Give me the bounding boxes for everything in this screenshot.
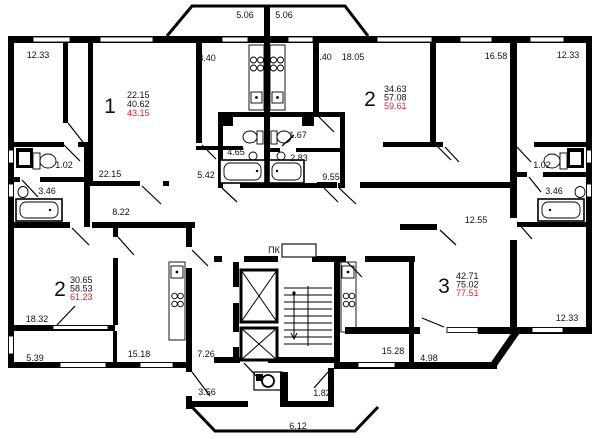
label-balcony-tr: 5.06 (275, 10, 293, 20)
label-balcony-539: 5.39 (26, 353, 44, 363)
label-room-tl: 12.33 (27, 50, 50, 60)
label-room-tr: 12.33 (557, 50, 580, 60)
floor-plan: 5.06 5.06 12.33 8.40 8.40 18.05 16.58 12… (0, 0, 600, 438)
label-wc-167: 1.67 (289, 130, 307, 140)
label-corr-542: 5.42 (197, 170, 215, 180)
apartment-1-total-with-balcony: 43.15 (127, 108, 150, 118)
label-hall-822: 8.22 (112, 207, 130, 217)
label-vest-182: 1.82 (313, 388, 331, 398)
label-bath-465: 4.65 (227, 147, 245, 157)
label-bath-left: 3.46 (38, 186, 56, 196)
label-vest-356: 3.56 (198, 387, 216, 397)
apartment-3-stamp: 3 42.71 75.02 77.51 (438, 271, 478, 298)
apartment-2-bottom-total-with-balcony: 61.23 (70, 292, 93, 302)
label-room-1658: 16.58 (485, 51, 508, 61)
label-kitchen-apt1: 8.40 (198, 53, 216, 63)
label-kitchen-apt2: 8.40 (314, 52, 332, 62)
apartment-2-top-stamp: 2 34.63 57.08 59.61 (364, 84, 406, 111)
label-porch-612: 6.12 (289, 421, 307, 431)
entrance-porch-outline (192, 407, 378, 431)
label-kitchen-1528: 15.28 (382, 346, 405, 356)
staircase (284, 286, 332, 346)
elevator-shafts (241, 270, 277, 360)
label-room-1805: 18.05 (342, 52, 365, 62)
apartment-2-top-number: 2 (364, 88, 376, 111)
label-bath-right: 3.46 (545, 186, 563, 196)
label-wc-right: 1.02 (533, 160, 551, 170)
apartment-2-top-total-with-balcony: 59.61 (384, 101, 407, 111)
label-balcony-498: 4.98 (420, 353, 438, 363)
walls (8, 6, 592, 409)
label-corr-1255: 12.55 (465, 215, 488, 225)
apartment-1-number: 1 (104, 95, 116, 118)
apartment-3-total-with-balcony: 77.51 (456, 288, 479, 298)
garbage-chute (254, 372, 282, 390)
apartment-1-stamp: 1 22.15 40.62 43.15 (104, 90, 149, 118)
label-corr-726: 7.26 (197, 349, 215, 359)
label-room-2215: 22.15 (99, 169, 122, 179)
label-room-1832: 18.32 (26, 314, 49, 324)
label-wc-left: 1.02 (55, 160, 73, 170)
label-balcony-tl: 5.06 (236, 10, 254, 20)
fire-cabinet (282, 244, 316, 257)
apartment-2-bottom-stamp: 2 30.65 58.53 61.23 (54, 275, 92, 302)
label-bath-283: 2.83 (290, 153, 308, 163)
label-corr-955: 9.55 (322, 172, 340, 182)
label-fire-cabinet: ПК (268, 245, 280, 255)
apartment-2-bottom-number: 2 (54, 278, 66, 301)
label-room-br: 12.33 (556, 313, 579, 323)
windows (9, 37, 592, 368)
label-kitchen-1518: 15.18 (128, 349, 151, 359)
apartment-3-number: 3 (438, 275, 450, 298)
